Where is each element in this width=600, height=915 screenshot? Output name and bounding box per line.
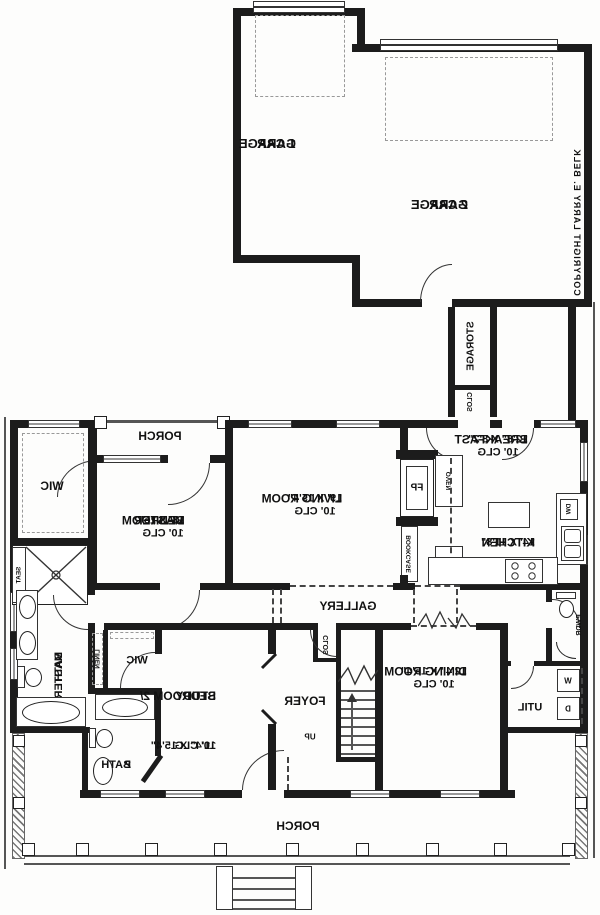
toilet-bowl [559,600,574,618]
room-label-linen: LINEN [94,649,101,669]
gallery-opening-dash [280,589,282,623]
sink-basin [564,529,581,543]
window [165,790,205,798]
cased-opening [290,585,393,587]
interior-wall [200,583,233,590]
interior-wall [268,724,276,790]
tub-basin [22,701,80,724]
interior-wall [88,583,95,595]
room-label-foyer: FOYER [284,695,325,709]
sink [19,595,36,619]
porch-edge [97,420,228,423]
fireplace-side [396,517,438,526]
label-bookcase: BOOKCASE [405,535,412,573]
label-up: UP [304,732,315,741]
kitchen-island [488,502,530,528]
entry-step-tread [233,888,295,890]
window [440,790,480,798]
interior-wall [88,455,97,583]
window [248,420,292,428]
label-dw: DW [565,504,572,515]
garage-door-2car [380,39,558,51]
garage-wall [352,299,422,307]
window [540,420,576,428]
stair-tread [341,735,375,737]
exterior-wall [284,790,515,798]
interior-wall [336,623,375,630]
side-steps-left [12,733,25,859]
interior-wall [546,628,552,661]
porch-column [575,735,587,747]
entry-step-rail [216,866,233,910]
foundation-line [593,302,595,858]
sink-basin [564,545,581,558]
toilet-bowl [96,729,113,748]
storage-wall [448,385,497,390]
copyright-text: COPYRIGHT LARRY E. BELK [572,148,582,296]
interior-wall [103,630,108,694]
porch-edge [24,863,570,865]
room-label-gallery: GALLERY [320,600,377,614]
breezeway-wall [568,307,576,420]
interior-wall [500,623,508,790]
side-steps-right [575,733,588,859]
room-label-clos-garage: CLOS [467,392,475,411]
room-label-wic-master: WIC [40,480,63,494]
room-label-pwdr: PWDR [576,614,584,635]
toilet-tank [89,728,96,748]
porch-column [13,735,25,747]
toilet-tank [556,592,576,599]
label-washer: W [564,676,572,685]
interior-wall [95,583,160,590]
interior-wall [141,754,163,783]
garage-door-track [255,15,345,97]
stair-tread [341,726,375,728]
porch-column [22,843,35,856]
room-label-breakfast: BREAKFAST 12'8" X 8'2" 10' CLG [468,433,528,458]
floor-plan: 1 CARGARAGE 2 CARGARAGE COPYRIGHT LARRY … [0,0,600,915]
foundation-line [4,417,6,869]
porch-column [575,797,587,809]
label-dryer: D [565,704,571,713]
stair-wall [336,630,341,762]
garage-storage-door-arc [420,264,452,302]
storage-wall [490,307,497,417]
stair-tread [341,744,375,746]
room-label-porch-bottom: PORCH [276,820,319,834]
porch-column [76,843,89,856]
bedroom2-opening-jambs [260,650,278,728]
porch-column [356,843,369,856]
entry-step-rail [295,866,312,910]
foyer-transom-dash [287,757,289,790]
exterior-wall [410,420,458,428]
interior-wall [10,538,90,545]
interior-wall [383,623,411,630]
gallery-opening-dash [413,589,415,623]
dining-arch-marks [418,610,470,632]
util-door-arc [511,666,534,689]
stair-tread [341,753,375,755]
room-label-wic2: WIC [126,655,147,668]
interior-wall [104,623,318,630]
window [103,455,161,463]
room-label-master: MASTERBEDROOM 13' X 15' 10' CLG [141,514,184,539]
garage-door-1car [253,1,345,13]
garage-door-track [385,57,553,141]
wd-divider-dash [581,668,583,724]
stair-tread [341,690,375,692]
stair-tread [341,717,375,719]
label-fp: FP [411,482,424,494]
entry-step-tread [233,877,295,879]
porch-column [494,843,507,856]
porch-column [13,797,25,809]
garage-wall [584,44,592,307]
room-label-storage: STORAGE [466,321,477,370]
room-label-clos-foyer: CLOS [323,635,331,654]
sink [19,631,36,655]
room-label-porch-top: PORCH [138,430,181,444]
room-label-living: LIVING ROOM 19' X 15'4" 10' CLG [288,492,342,517]
garage-wall [233,255,360,263]
cased-opening [415,585,460,587]
front-door-arc [242,750,284,790]
interior-wall [534,661,587,666]
room-label-dining: DINING ROOM 12'4" X 15'4" 10' CLG [401,665,467,690]
master-bath-door-arc [53,595,88,630]
exterior-wall [490,420,502,428]
interior-wall [155,630,162,654]
entry-step-tread [233,908,295,910]
stair-tread [341,708,375,710]
porch-column [286,843,299,856]
stair-wall [375,623,383,790]
interior-wall [400,575,408,590]
window [580,442,588,482]
toilet-bowl [25,668,42,687]
room-label-util: UTIL [518,702,542,715]
fireplace-side [396,450,438,459]
window [336,420,380,428]
window [28,420,80,428]
room-label-kitchen: KITCHEN 14' X 11'8" [481,537,535,550]
porch-column [214,843,227,856]
interior-wall [400,428,408,452]
stair-direction-line [351,700,353,750]
porch-column [426,843,439,856]
garage-wall [452,299,592,307]
window [350,790,390,798]
stair-up-arrow [346,693,358,703]
label-seat: SEAT [15,567,22,584]
wic2-shelving [110,632,154,639]
porch-column [562,843,575,856]
master-porch-door-arc [168,463,210,505]
gallery-opening-dash [272,589,274,623]
storage-wall [448,307,455,417]
stove-burners [505,559,543,583]
interior-wall [82,727,88,793]
stair-break-line [338,664,378,688]
entry-step-tread [233,899,295,901]
corner-sink [556,642,576,659]
toilet-tank [17,666,25,688]
interior-wall [225,420,233,590]
stair-wall [336,757,383,762]
window [100,790,140,798]
porch-column [145,843,158,856]
